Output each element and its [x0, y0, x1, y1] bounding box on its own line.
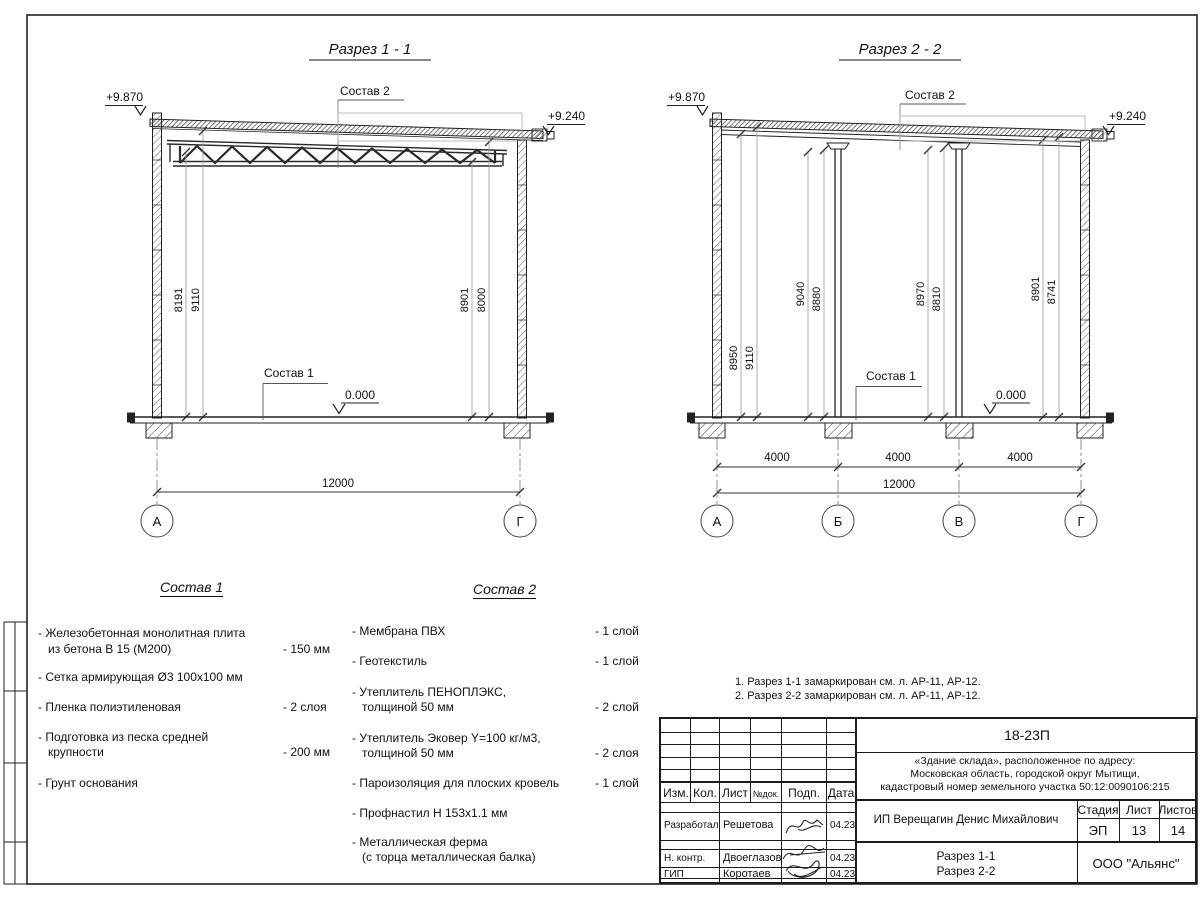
- column-b: [827, 143, 849, 417]
- list-value: - 1 слой: [595, 777, 639, 789]
- col-list: Лист: [722, 787, 748, 799]
- list-item: - Пароизоляция для плоских кровель: [352, 777, 559, 789]
- axis-a: А: [153, 514, 162, 529]
- list-item: - Геотекстиль: [352, 655, 427, 667]
- list-value: - 150 мм: [283, 643, 330, 655]
- list-value: - 200 мм: [283, 746, 330, 758]
- signature-developer: [782, 813, 826, 840]
- dim-8000: 8000: [476, 288, 488, 312]
- name-ncontrol: Двоеглазов: [723, 853, 781, 864]
- axes: 4000 4000 4000 12000 А Б В Г: [701, 438, 1097, 537]
- title-block: Изм. Кол. Лист №док. Подп. Дата Разработ…: [659, 717, 1197, 884]
- col-podp: Подп.: [788, 787, 820, 799]
- sostav1-label: Состав 1: [866, 369, 916, 383]
- sheet-value: 13: [1132, 824, 1146, 837]
- dim-8191: 8191: [173, 288, 185, 312]
- object-line-1: «Здание склада», расположенное по адресу…: [915, 756, 1136, 767]
- date-developer: 04.23: [830, 821, 855, 831]
- dim-9110: 9110: [744, 346, 756, 370]
- role-developer: Разработал: [664, 821, 718, 831]
- dim-8741: 8741: [1046, 280, 1058, 304]
- zero-level: 0.000: [345, 388, 375, 402]
- client: ИП Верещагин Денис Михайлович: [874, 815, 1059, 827]
- list-value: - 1 слой: [595, 625, 639, 637]
- sostav1-label: Состав 1: [264, 366, 314, 380]
- floor-slab: [127, 413, 554, 439]
- column-v: [948, 143, 970, 417]
- dim-8901: 8901: [1030, 277, 1042, 301]
- name-gip: Коротаев: [723, 869, 771, 880]
- dim-total: 12000: [883, 479, 915, 491]
- list-value: - 2 слоя: [595, 747, 639, 759]
- wall-right: [518, 140, 527, 418]
- dim-span-3: 4000: [1007, 452, 1033, 464]
- axis-v: В: [955, 514, 964, 529]
- object-line-3: кадастровый номер земельного участка 50:…: [880, 782, 1169, 793]
- zero-level: 0.000: [996, 388, 1026, 402]
- col-data: Дата: [828, 787, 855, 799]
- list-item: - Железобетонная монолитная плита: [38, 627, 245, 639]
- list-item: - Подготовка из песка средней: [38, 731, 208, 743]
- elev-right: +9.240: [548, 109, 585, 123]
- signature-ncontrol-gip: [780, 843, 828, 882]
- stage-value: ЭП: [1089, 824, 1108, 837]
- dim-span-1: 4000: [764, 452, 790, 464]
- axis-b: Б: [834, 514, 843, 529]
- dim-9040: 9040: [795, 282, 807, 306]
- list-item: - Профнастил Н 153х1.1 мм: [352, 807, 508, 819]
- list-item: - Пленка полиэтиленовая: [38, 701, 181, 713]
- note-1: 1. Разрез 1-1 замаркирован см. л. АР-11,…: [735, 677, 981, 688]
- roof-slab: [150, 119, 554, 141]
- section-2-2-title: Разрез 2 - 2: [859, 41, 942, 58]
- sostav1-title: Состав 1: [160, 580, 223, 597]
- roof-slab: [710, 119, 1114, 147]
- date-ncontrol: 04.23: [830, 854, 855, 864]
- drawing-name-1: Разрез 1-1: [937, 850, 996, 862]
- sostav2-label: Состав 2: [905, 88, 955, 102]
- dim-8970: 8970: [915, 282, 927, 306]
- dim-8901: 8901: [459, 288, 471, 312]
- role-gip: ГИП: [664, 870, 684, 880]
- elev-left: +9.870: [668, 90, 705, 104]
- vertical-dimensions: 8191 9110 8901 8000: [173, 127, 493, 421]
- list-item: - Сетка армирующая Ø3 100х100 мм: [38, 671, 243, 683]
- wall-left: [153, 113, 162, 418]
- elev-left: +9.870: [106, 90, 143, 104]
- drawing-name-2: Разрез 2-2: [937, 865, 996, 877]
- sheets-label: Листов: [1159, 804, 1198, 816]
- project-code: 18-23П: [1004, 728, 1050, 742]
- section-1-1-title: Разрез 1 - 1: [329, 41, 412, 58]
- col-izm: Изм.: [663, 787, 689, 799]
- dim-8810: 8810: [931, 287, 943, 311]
- col-ndok: №док.: [753, 790, 779, 799]
- dim-8880: 8880: [811, 287, 823, 311]
- roof-truss: [167, 141, 507, 167]
- note-2: 2. Разрез 2-2 замаркирован см. л. АР-11,…: [735, 691, 981, 702]
- list-item: - Грунт основания: [38, 777, 138, 789]
- section-2-2: Разрез 2 - 2: [667, 41, 1146, 537]
- list-item: - Металлическая ферма: [352, 836, 488, 848]
- list-item: крупности: [48, 746, 104, 758]
- role-ncontrol: Н. контр.: [664, 854, 705, 864]
- dim-9110: 9110: [190, 288, 202, 312]
- sheet-label: Лист: [1126, 804, 1152, 816]
- list-item: - Утеплитель ПЕНОПЛЭКС,: [352, 686, 506, 698]
- elev-right: +9.240: [1109, 109, 1146, 123]
- section-1-1: Разрез 1 - 1: [105, 41, 585, 537]
- sheets-value: 14: [1171, 824, 1185, 837]
- company: ООО "Альянс": [1093, 857, 1180, 870]
- list-item: толщиной 50 мм: [362, 747, 454, 759]
- stage-label: Стадия: [1078, 804, 1119, 816]
- list-item: - Мембрана ПВХ: [352, 625, 445, 637]
- object-line-2: Московская область, городской округ Мыти…: [910, 769, 1139, 780]
- dim-total: 12000: [322, 478, 354, 490]
- dim-8950: 8950: [728, 346, 740, 370]
- list-item: из бетона В 15 (М200): [48, 643, 171, 655]
- wall-right: [1081, 140, 1090, 418]
- list-value: - 1 слой: [595, 655, 639, 667]
- name-developer: Решетова: [723, 820, 773, 831]
- col-kol: Кол.: [693, 787, 717, 799]
- list-item: толщиной 50 мм: [362, 701, 454, 713]
- list-value: - 2 слоя: [283, 701, 327, 713]
- axes: 12000 А Г: [141, 438, 536, 537]
- axis-g: Г: [1077, 514, 1084, 529]
- date-gip: 04.23: [830, 870, 855, 880]
- axis-a: А: [713, 514, 722, 529]
- floor-slab: [687, 413, 1114, 439]
- sostav2-title: Состав 2: [473, 582, 536, 599]
- sostav2-label: Состав 2: [340, 84, 390, 98]
- list-value: - 2 слой: [595, 701, 639, 713]
- wall-left: [713, 113, 722, 418]
- list-item: - Утеплитель Эковер Y=100 кг/м3,: [352, 732, 541, 744]
- axis-g: Г: [516, 514, 523, 529]
- list-item: (с торца металлическая балка): [362, 851, 536, 863]
- drawing-sheet: { "s1": { "title": "Разрез 1 - 1", "elev…: [0, 0, 1200, 900]
- dim-span-2: 4000: [885, 452, 911, 464]
